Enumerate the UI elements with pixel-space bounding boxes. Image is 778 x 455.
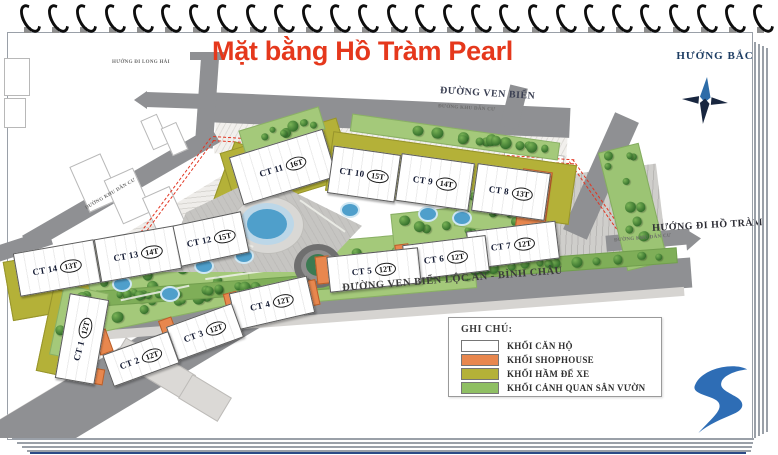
tree-icon xyxy=(431,127,444,140)
floors-badge: 12T xyxy=(513,236,536,252)
arrow-long-hai-icon xyxy=(134,91,147,109)
tree-icon xyxy=(412,125,424,137)
legend-item: KHỐI HẦM ĐỂ XE xyxy=(461,368,589,380)
building-name: CT 11 xyxy=(258,162,284,179)
tree-icon xyxy=(116,291,123,298)
tree-icon xyxy=(635,201,646,212)
road-west xyxy=(146,92,206,109)
floors-badge: 12T xyxy=(140,345,165,365)
building-ct-9: CT 914T xyxy=(395,153,475,211)
tree-icon xyxy=(624,225,634,235)
building-ct-10: CT 1015T xyxy=(327,146,401,203)
page-stack-line-right xyxy=(758,44,760,436)
road-label-ho-tram: HƯỚNG ĐI HỒ TRÀM xyxy=(652,217,763,234)
floors-badge: 13T xyxy=(511,186,534,202)
tree-icon xyxy=(571,256,583,268)
legend-label: KHỐI CẢNH QUAN SÂN VƯỜN xyxy=(507,383,645,393)
neighbour-lot xyxy=(4,58,30,96)
building-ct-8: CT 813T xyxy=(471,163,551,221)
tree-icon xyxy=(612,254,622,264)
building-name: CT 13 xyxy=(113,249,139,263)
tree-icon xyxy=(499,136,512,149)
page-stack-line-right xyxy=(762,46,764,434)
pond xyxy=(340,202,360,218)
building-name: CT 6 xyxy=(423,253,444,265)
page-stack-line-bottom xyxy=(12,438,754,440)
tree-icon xyxy=(603,151,613,161)
tree-icon xyxy=(399,215,410,226)
page-stack-line-bottom xyxy=(17,442,753,444)
compass-rose-icon xyxy=(678,68,731,132)
tree-icon xyxy=(269,126,277,134)
floors-badge: 16T xyxy=(284,154,308,173)
floors-badge: 14T xyxy=(140,243,163,260)
legend-swatch xyxy=(461,340,499,352)
tree-icon xyxy=(604,162,613,171)
tree-icon xyxy=(540,144,549,153)
legend-swatch xyxy=(461,354,499,366)
page-title: Mặt bằng Hồ Tràm Pearl xyxy=(212,36,513,67)
floors-badge: 15T xyxy=(366,168,389,184)
pond xyxy=(160,286,180,302)
tree-icon xyxy=(458,134,469,145)
page-stack-line-bottom xyxy=(22,446,752,448)
page-stack-line-outer xyxy=(30,452,746,454)
tree-icon xyxy=(623,200,637,214)
tree-icon xyxy=(515,140,525,150)
building-label: CT 813T xyxy=(472,164,550,220)
building-name: CT 14 xyxy=(32,263,58,277)
floors-badge: 14T xyxy=(435,176,458,192)
calendar-page: CT 1413TCT 1314TCT 1215TCT 1116TCT 1015T… xyxy=(0,0,778,455)
legend-title: GHI CHÚ: xyxy=(461,324,513,335)
tree-icon xyxy=(475,137,484,146)
legend-item: KHỐI CĂN HỘ xyxy=(461,340,573,352)
legend-item: KHỐI SHOPHOUSE xyxy=(461,354,594,366)
page-stack-line-right xyxy=(754,42,756,438)
building-name: CT 9 xyxy=(412,174,433,187)
building-label: CT 914T xyxy=(396,154,474,210)
floors-badge: 12T xyxy=(76,316,94,340)
tree-icon xyxy=(111,310,125,324)
building-name: CT 1 xyxy=(71,340,86,362)
tree-icon xyxy=(631,216,642,227)
legend-label: KHỐI HẦM ĐỂ XE xyxy=(507,369,589,379)
tree-icon xyxy=(637,251,647,261)
legend-label: KHỐI CĂN HỘ xyxy=(507,341,573,351)
floors-badge: 13T xyxy=(59,257,82,274)
building-name: CT 10 xyxy=(339,166,365,179)
lagoon-water xyxy=(247,209,287,239)
floors-badge: 15T xyxy=(213,228,237,245)
building-name: CT 2 xyxy=(118,355,140,371)
floors-badge: 12T xyxy=(271,292,295,309)
building-name: CT 7 xyxy=(490,240,511,252)
building-name: CT 3 xyxy=(182,328,204,344)
road-label-long-hai: HƯỚNG ĐI LONG HẢI xyxy=(112,60,170,65)
tree-icon xyxy=(526,141,539,154)
building-label: CT 1015T xyxy=(328,147,400,202)
tree-icon xyxy=(139,305,149,315)
tree-icon xyxy=(621,177,629,185)
tree-icon xyxy=(299,118,309,128)
pond xyxy=(418,206,438,222)
building-name: CT 8 xyxy=(488,184,509,197)
brand-swoosh-logo xyxy=(688,358,762,440)
floors-badge: 12T xyxy=(204,318,229,338)
legend-label: KHỐI SHOPHOUSE xyxy=(507,355,594,365)
tree-icon xyxy=(261,133,269,141)
tree-icon xyxy=(592,257,601,266)
neighbour-lot xyxy=(161,122,189,156)
pond xyxy=(452,210,472,226)
floors-badge: 12T xyxy=(446,249,469,265)
legend-swatch xyxy=(461,382,499,394)
legend-item: KHỐI CẢNH QUAN SÂN VƯỜN xyxy=(461,382,645,394)
tree-icon xyxy=(204,286,214,296)
neighbour-lot xyxy=(4,98,26,128)
building-name: CT 5 xyxy=(351,265,372,277)
page-stack-line-right xyxy=(766,48,768,432)
tree-icon xyxy=(655,254,662,261)
legend-box: GHI CHÚ: KHỐI CĂN HỘKHỐI SHOPHOUSEKHỐI H… xyxy=(448,317,662,397)
tree-icon xyxy=(309,121,318,130)
legend-swatch xyxy=(461,368,499,380)
floors-badge: 12T xyxy=(374,261,397,276)
tree-icon xyxy=(441,221,452,232)
building-name: CT 12 xyxy=(186,234,213,249)
building-name: CT 4 xyxy=(249,299,271,313)
